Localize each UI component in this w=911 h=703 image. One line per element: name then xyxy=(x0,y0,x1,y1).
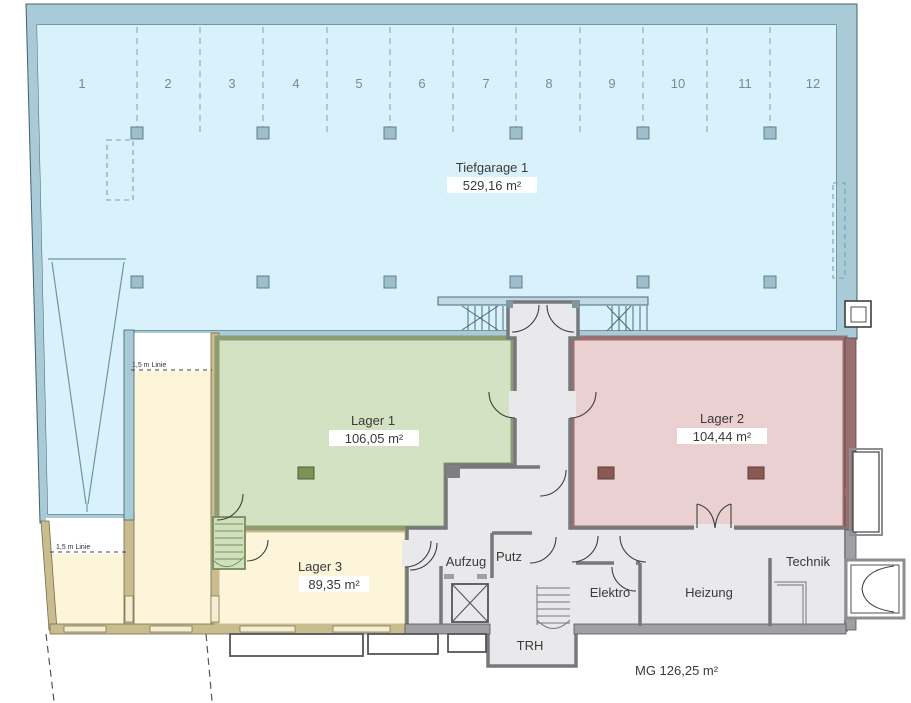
tiefgarage-area: 529,16 m² xyxy=(463,178,522,193)
vestibule-post-left xyxy=(506,301,513,308)
space-number-7: 7 xyxy=(482,76,489,91)
space-number-4: 4 xyxy=(292,76,299,91)
elektro-label: Elektro xyxy=(590,585,630,600)
space-number-1: 1 xyxy=(78,76,85,91)
strip-floor xyxy=(130,371,215,625)
technik-label: Technik xyxy=(786,554,831,569)
aufzug-label: Aufzug xyxy=(446,554,486,569)
ramp-wall-upper xyxy=(124,330,134,520)
lager3-area: 89,35 m² xyxy=(308,577,360,592)
lager2-label: Lager 2 xyxy=(700,411,744,426)
corridor-corner-post xyxy=(446,465,460,478)
lager1-area: 106,05 m² xyxy=(345,431,404,446)
bottom-wall-gray-right xyxy=(574,624,846,634)
lager3-label: Lager 3 xyxy=(298,559,342,574)
vestibule-post-right xyxy=(572,301,579,308)
lager3-stairwell xyxy=(213,517,245,569)
space-number-8: 8 xyxy=(545,76,552,91)
aufzug-door-stub-1 xyxy=(444,574,454,579)
mg-area-label: MG 126,25 m² xyxy=(635,663,719,678)
trh-label: TRH xyxy=(517,638,544,653)
space-number-5: 5 xyxy=(355,76,362,91)
technik-exterior-door xyxy=(846,560,904,618)
floor-plan: 1 2 3 4 5 6 7 8 9 10 11 12 Tiefgarage 1 … xyxy=(0,0,911,703)
space-number-2: 2 xyxy=(164,76,171,91)
tiefgarage-label: Tiefgarage 1 xyxy=(456,160,529,175)
space-number-11: 11 xyxy=(738,76,752,91)
property-lines xyxy=(46,634,212,701)
heizung-label: Heizung xyxy=(685,585,733,600)
space-number-9: 9 xyxy=(608,76,615,91)
lager2-column-1 xyxy=(598,467,614,479)
space-number-12: 12 xyxy=(806,76,820,91)
light-wells xyxy=(230,634,486,656)
bottomleft-floor xyxy=(47,554,128,625)
bottom-wall-gray-left xyxy=(405,624,490,634)
space-number-6: 6 xyxy=(418,76,425,91)
lager2-area: 104,44 m² xyxy=(693,429,752,444)
space-number-10: 10 xyxy=(671,76,685,91)
lager1-column xyxy=(298,467,314,479)
linie-label-1: 1,5 m Linie xyxy=(132,362,166,369)
garage-exit-box xyxy=(845,301,871,327)
linie-label-2: 1,5 m Linie xyxy=(56,544,90,551)
putz-label: Putz xyxy=(496,549,522,564)
lager2-column-2 xyxy=(748,467,764,479)
space-number-3: 3 xyxy=(228,76,235,91)
lager2-light-well xyxy=(850,449,882,535)
aufzug-door-stub-2 xyxy=(477,574,487,579)
lager1-label: Lager 1 xyxy=(351,413,395,428)
floor-plan-svg: 1 2 3 4 5 6 7 8 9 10 11 12 Tiefgarage 1 … xyxy=(0,0,911,703)
